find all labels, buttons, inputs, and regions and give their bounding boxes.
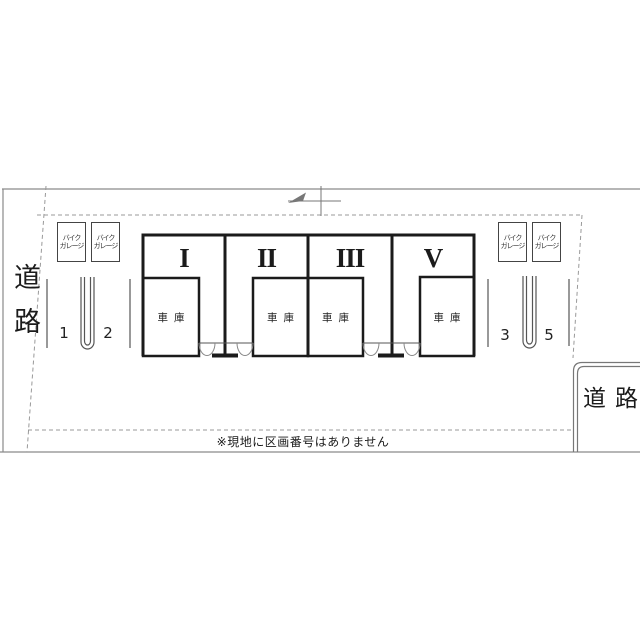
bike-garage-label-line2: ガレージ — [535, 242, 559, 251]
u-shaped-barrier-right — [523, 276, 536, 348]
garage-room-label-2: 車庫 — [253, 310, 308, 325]
garage-unit-label-4: V — [392, 243, 474, 273]
u-shaped-barrier-left — [81, 277, 94, 349]
garage-unit-label-2: II — [225, 243, 308, 273]
door-swing-arc-3 — [363, 343, 379, 355]
right-diagonal-boundary-dashed-line — [573, 215, 582, 358]
bike-garage-box-1: バイク ガレージ — [57, 222, 86, 262]
road-corner-label: 道路 — [583, 379, 640, 413]
garage-room-label-3: 車庫 — [308, 310, 363, 325]
bike-garage-box-2: バイク ガレージ — [91, 222, 120, 262]
bike-garage-label-line1: バイク — [538, 234, 556, 243]
garage-room-label-1: 車庫 — [143, 310, 199, 325]
bike-garage-label-line1: バイク — [97, 234, 115, 243]
parking-spot-number-3: 3 — [495, 326, 515, 344]
garage-unit-label-3: III — [308, 243, 392, 273]
garage-unit-label-1: I — [143, 243, 225, 273]
bike-garage-label-line2: ガレージ — [501, 242, 525, 251]
bike-garage-label-line2: ガレージ — [60, 242, 84, 251]
parking-layout-diagram: 道路 道路 バイク ガレージ バイク ガレージ バイク ガレージ バイク ガレー… — [0, 0, 640, 640]
north-arrow-icon — [288, 186, 341, 216]
parking-spot-number-2: 2 — [98, 324, 118, 342]
bike-garage-box-4: バイク ガレージ — [532, 222, 561, 262]
door-swing-arc-2 — [237, 343, 253, 355]
parking-spot-number-5: 5 — [539, 326, 559, 344]
garage-room-label-4: 車庫 — [420, 310, 474, 325]
site-footnote: ※現地に区画番号はありません — [153, 433, 453, 450]
bike-garage-label-line1: バイク — [63, 234, 81, 243]
parking-spot-number-1: 1 — [54, 324, 74, 342]
road-left-label: 道路 — [5, 263, 44, 351]
door-swing-arc-4 — [404, 343, 420, 355]
bike-garage-label-line2: ガレージ — [94, 242, 118, 251]
bike-garage-label-line1: バイク — [504, 234, 522, 243]
bike-garage-box-3: バイク ガレージ — [498, 222, 527, 262]
